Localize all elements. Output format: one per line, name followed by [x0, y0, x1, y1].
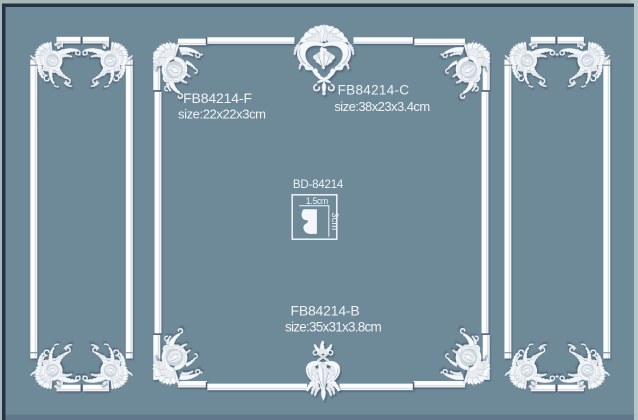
svg-text:size:22x22x3cm: size:22x22x3cm [178, 106, 266, 121]
svg-text:1.5cm: 1.5cm [306, 196, 328, 206]
svg-text:FB84214-F: FB84214-F [183, 90, 252, 106]
svg-text:3cm: 3cm [330, 212, 341, 230]
svg-text:size:35x31x3.8cm: size:35x31x3.8cm [285, 320, 382, 335]
svg-text:FB84214-C: FB84214-C [338, 83, 410, 98]
svg-text:size:38x23x3.4cm: size:38x23x3.4cm [334, 99, 429, 114]
svg-text:BD-84214: BD-84214 [293, 179, 344, 191]
svg-text:FB84214-B: FB84214-B [290, 303, 359, 319]
